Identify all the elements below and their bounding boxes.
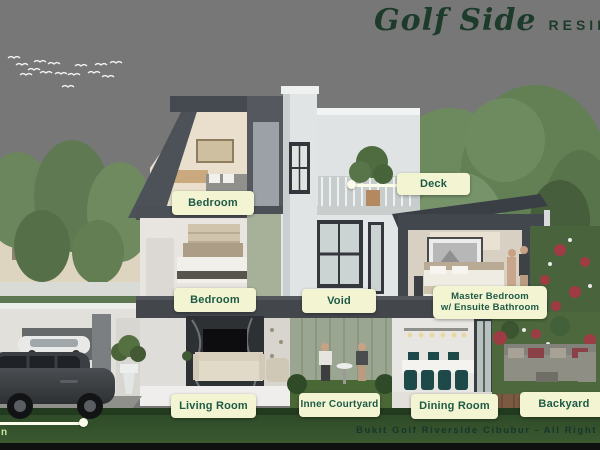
dining-chair [404, 370, 417, 390]
label-bedroom-top-text: Bedroom [188, 197, 238, 210]
brand-header: Golf Side RESIDENC [374, 3, 600, 38]
person-seated [319, 351, 332, 365]
wall-artwork [197, 140, 233, 162]
marketing-slide: Golf Side RESIDENC Deck Bedroom Bedroom … [0, 0, 600, 450]
label-master-bedroom: Master Bedroom w/ Ensuite Bathroom [433, 286, 547, 319]
label-deck: Deck [397, 173, 470, 195]
label-inner-courtyard-text: Inner Courtyard [300, 399, 378, 411]
label-dining-room-text: Dining Room [419, 400, 490, 413]
label-dining-room: Dining Room [411, 394, 498, 419]
label-backyard: Backyard [520, 392, 600, 417]
label-master-line2: w/ Ensuite Bathroom [441, 303, 539, 314]
label-bedroom-top: Bedroom [172, 191, 254, 215]
armchair [266, 358, 289, 382]
brand-caps-text: RESIDENC [549, 17, 600, 33]
bed [177, 257, 247, 283]
television [203, 329, 247, 356]
label-living-room-text: Living Room [179, 400, 248, 413]
bottom-bar [0, 443, 600, 450]
brand-script-text: Golf Side [374, 3, 537, 38]
scene-illustration [0, 0, 600, 450]
label-inner-courtyard: Inner Courtyard [299, 393, 380, 417]
label-void: Void [302, 289, 376, 313]
deck-leader-line [352, 184, 398, 187]
deck-leader-dot [347, 180, 356, 189]
living-room [140, 316, 290, 406]
footer-credit: Bukit Golf Riverside Cibubur - All Right… [356, 425, 600, 436]
deck-area [317, 108, 420, 215]
person-seated [356, 351, 368, 365]
sofa [195, 361, 263, 381]
clipped-leader-line [0, 422, 84, 425]
label-living-room: Living Room [171, 394, 256, 418]
person-standing [519, 254, 529, 276]
label-void-text: Void [327, 295, 351, 308]
clipped-leader-dot [79, 418, 88, 427]
label-bedroom-mid: Bedroom [174, 288, 256, 312]
label-master-line1: Master Bedroom [451, 292, 529, 303]
bed-headboard [183, 243, 243, 259]
flying-birds-icon [8, 57, 122, 88]
label-deck-text: Deck [420, 178, 447, 191]
label-backyard-text: Backyard [538, 398, 589, 411]
clipped-label-fragment: n [1, 427, 7, 438]
tower [281, 86, 319, 310]
label-bedroom-mid-text: Bedroom [190, 294, 240, 307]
